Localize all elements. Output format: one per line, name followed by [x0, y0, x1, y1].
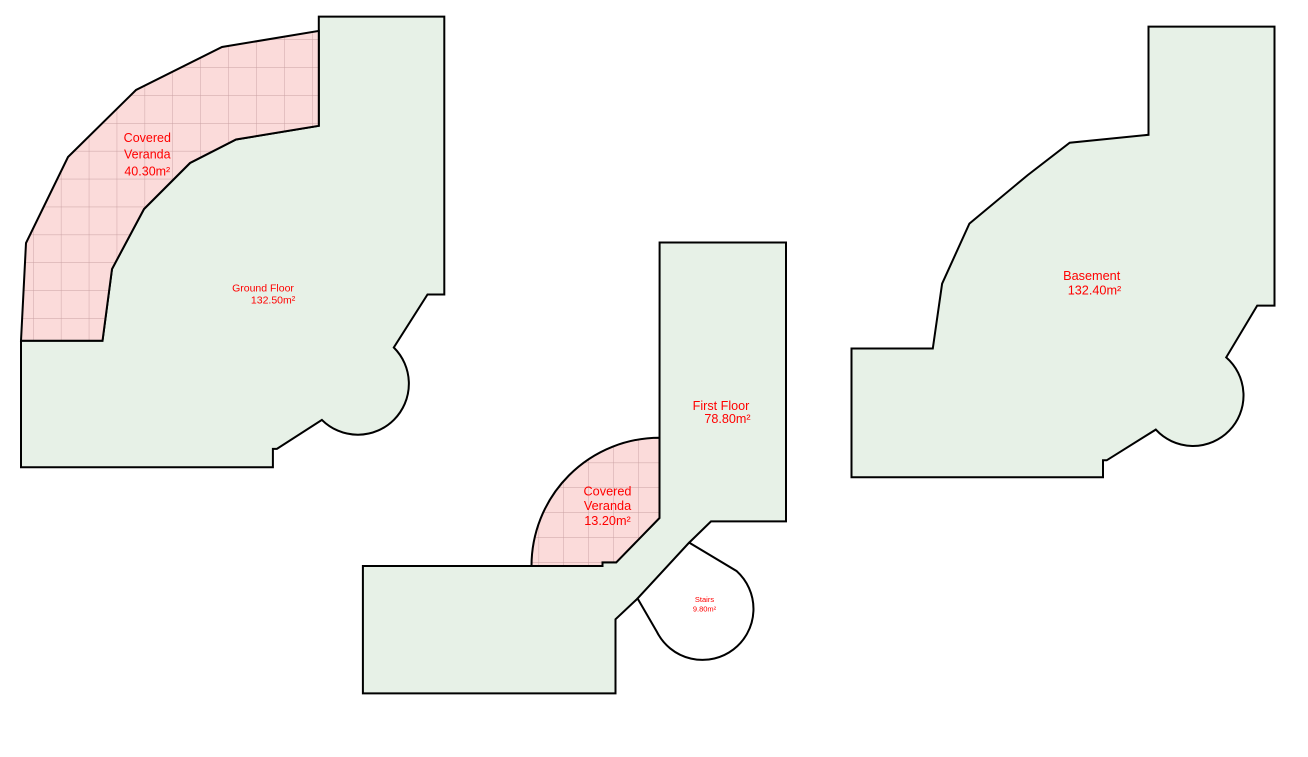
svg-text:First Floor: First Floor — [693, 399, 750, 413]
svg-text:Basement: Basement — [1063, 269, 1121, 283]
svg-text:Veranda: Veranda — [124, 148, 171, 162]
svg-text:Ground Floor: Ground Floor — [232, 283, 294, 295]
svg-text:132.40m²: 132.40m² — [1068, 283, 1122, 297]
svg-text:9.80m²: 9.80m² — [693, 605, 717, 614]
svg-text:13.20m²: 13.20m² — [584, 514, 631, 528]
svg-text:132.50m²: 132.50m² — [251, 295, 296, 307]
svg-text:40.30m²: 40.30m² — [124, 164, 170, 178]
svg-text:Stairs: Stairs — [695, 595, 714, 604]
svg-text:Covered: Covered — [584, 484, 632, 498]
svg-text:Covered: Covered — [124, 131, 171, 145]
svg-text:78.80m²: 78.80m² — [704, 412, 750, 426]
svg-text:Veranda: Veranda — [584, 499, 632, 513]
